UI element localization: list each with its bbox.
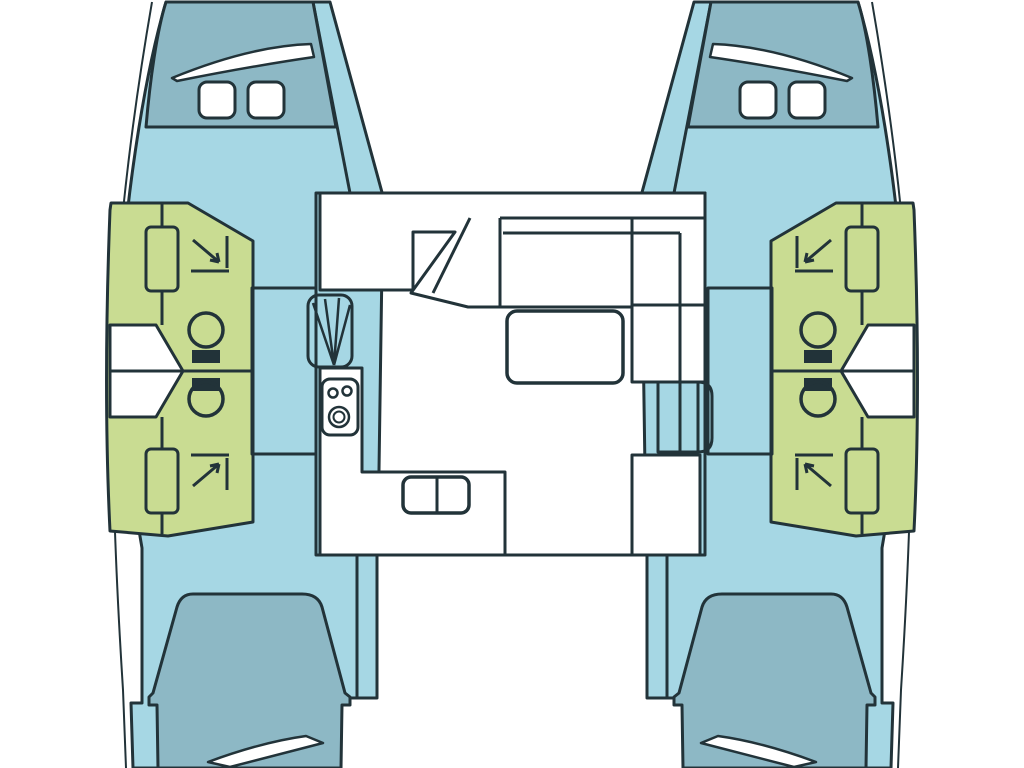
stove-icon <box>322 379 358 435</box>
starboard-hull <box>641 2 917 768</box>
catamaran-floorplan <box>0 0 1024 768</box>
salon-table <box>507 311 623 383</box>
sink-icon <box>403 477 469 513</box>
floorplan-canvas <box>0 0 1024 768</box>
nav-station <box>632 455 700 555</box>
